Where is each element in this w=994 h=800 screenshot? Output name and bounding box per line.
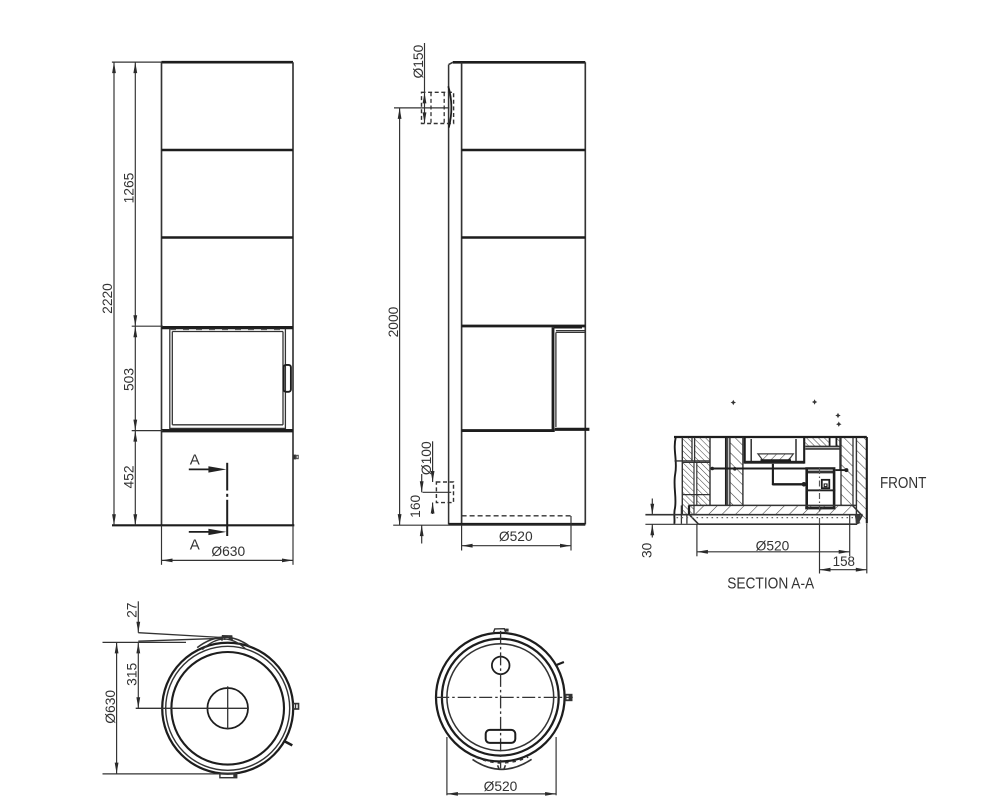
svg-text:Ø150: Ø150 bbox=[411, 44, 426, 78]
svg-text:Ø520: Ø520 bbox=[484, 779, 518, 794]
svg-text:158: 158 bbox=[833, 554, 855, 569]
svg-text:Ø520: Ø520 bbox=[499, 529, 533, 544]
svg-text:30: 30 bbox=[639, 542, 654, 558]
svg-text:SECTION A-A: SECTION A-A bbox=[727, 575, 814, 592]
svg-text:160: 160 bbox=[408, 494, 423, 517]
svg-text:503: 503 bbox=[121, 368, 136, 391]
svg-text:452: 452 bbox=[121, 465, 136, 488]
svg-text:Ø630: Ø630 bbox=[211, 544, 245, 559]
svg-text:Ø100: Ø100 bbox=[419, 441, 434, 475]
svg-text:2220: 2220 bbox=[100, 283, 115, 314]
svg-text:A: A bbox=[190, 451, 200, 468]
svg-text:2000: 2000 bbox=[386, 306, 401, 337]
svg-text:Ø520: Ø520 bbox=[756, 538, 790, 553]
svg-text:Ø630: Ø630 bbox=[103, 690, 118, 724]
svg-text:FRONT: FRONT bbox=[880, 475, 927, 492]
svg-text:315: 315 bbox=[125, 662, 140, 685]
svg-text:1265: 1265 bbox=[121, 172, 136, 203]
svg-text:A: A bbox=[190, 537, 200, 554]
svg-text:27: 27 bbox=[125, 603, 140, 618]
